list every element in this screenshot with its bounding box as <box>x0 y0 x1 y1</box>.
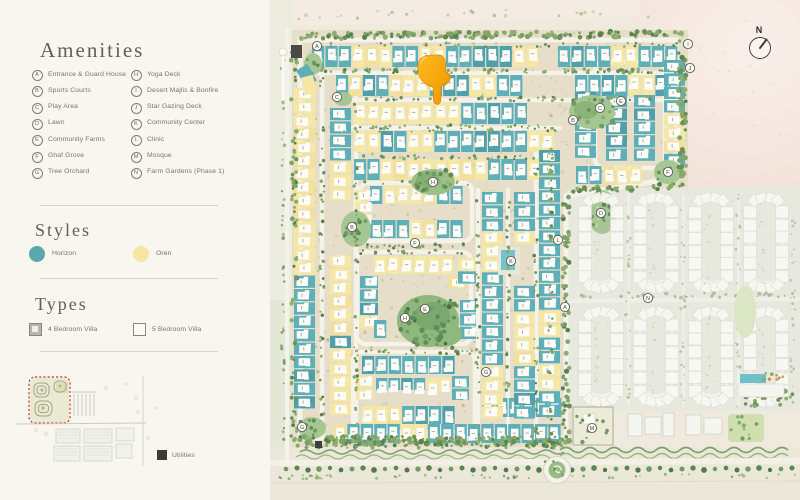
svg-text:N: N <box>756 25 763 35</box>
svg-text:C: C <box>335 95 339 101</box>
svg-text:E: E <box>619 99 623 105</box>
svg-text:H: H <box>431 180 435 186</box>
svg-text:H: H <box>403 316 407 322</box>
svg-text:E: E <box>423 307 427 313</box>
svg-text:K: K <box>509 259 513 265</box>
svg-text:F: F <box>413 241 417 247</box>
svg-text:F: F <box>666 170 670 176</box>
svg-text:G: G <box>484 370 488 376</box>
svg-text:A: A <box>563 305 567 311</box>
svg-text:D: D <box>599 211 603 217</box>
svg-text:C: C <box>598 106 602 112</box>
svg-text:B: B <box>350 225 354 231</box>
svg-text:L: L <box>556 238 559 244</box>
svg-text:J: J <box>689 66 692 72</box>
svg-text:N: N <box>646 296 650 302</box>
svg-text:G: G <box>300 425 304 431</box>
svg-text:A: A <box>315 44 319 50</box>
svg-text:B: B <box>571 118 575 124</box>
svg-text:M: M <box>590 426 595 432</box>
